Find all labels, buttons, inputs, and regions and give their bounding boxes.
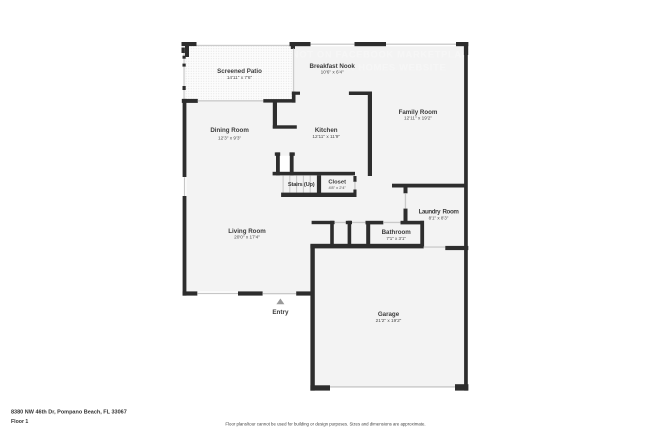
svg-text:Garage: Garage [378, 311, 400, 318]
svg-text:8'1" x 8'3": 8'1" x 8'3" [429, 215, 449, 220]
svg-text:7'1" x 3'1": 7'1" x 3'1" [386, 236, 406, 241]
svg-text:Floor 1: Floor 1 [11, 419, 28, 425]
svg-text:20'0" x 17'4": 20'0" x 17'4" [234, 235, 260, 240]
svg-text:Floor plans/tour cannot be use: Floor plans/tour cannot be used for buil… [225, 421, 425, 426]
svg-text:4'8" x 2'4": 4'8" x 2'4" [328, 185, 346, 190]
svg-text:Dining Room: Dining Room [210, 127, 249, 134]
svg-text:14'11" x 7'6": 14'11" x 7'6" [227, 75, 253, 80]
svg-text:21'2" x 19'2": 21'2" x 19'2" [376, 318, 402, 323]
svg-text:12'11" x 19'2": 12'11" x 19'2" [404, 116, 432, 121]
svg-text:OR HOMES WEBSITE: OR HOMES WEBSITE [340, 63, 447, 73]
svg-text:Screened Patio: Screened Patio [217, 68, 262, 75]
svg-text:Entry: Entry [272, 309, 289, 316]
svg-text:12'11" x 11'9": 12'11" x 11'9" [312, 134, 340, 139]
svg-text:Kitchen: Kitchen [315, 127, 338, 134]
svg-text:Stairs (Up): Stairs (Up) [288, 182, 315, 188]
svg-text:8380 NW 46th Dr, Pompano Beach: 8380 NW 46th Dr, Pompano Beach, FL 33067 [11, 410, 127, 416]
svg-text:12'3" x 9'3": 12'3" x 9'3" [218, 135, 241, 140]
svg-text:NOT ON FACEBOOK MARKETPLACE: NOT ON FACEBOOK MARKETPLACE [292, 50, 476, 60]
svg-text:10'6" x 6'4": 10'6" x 6'4" [321, 70, 344, 75]
